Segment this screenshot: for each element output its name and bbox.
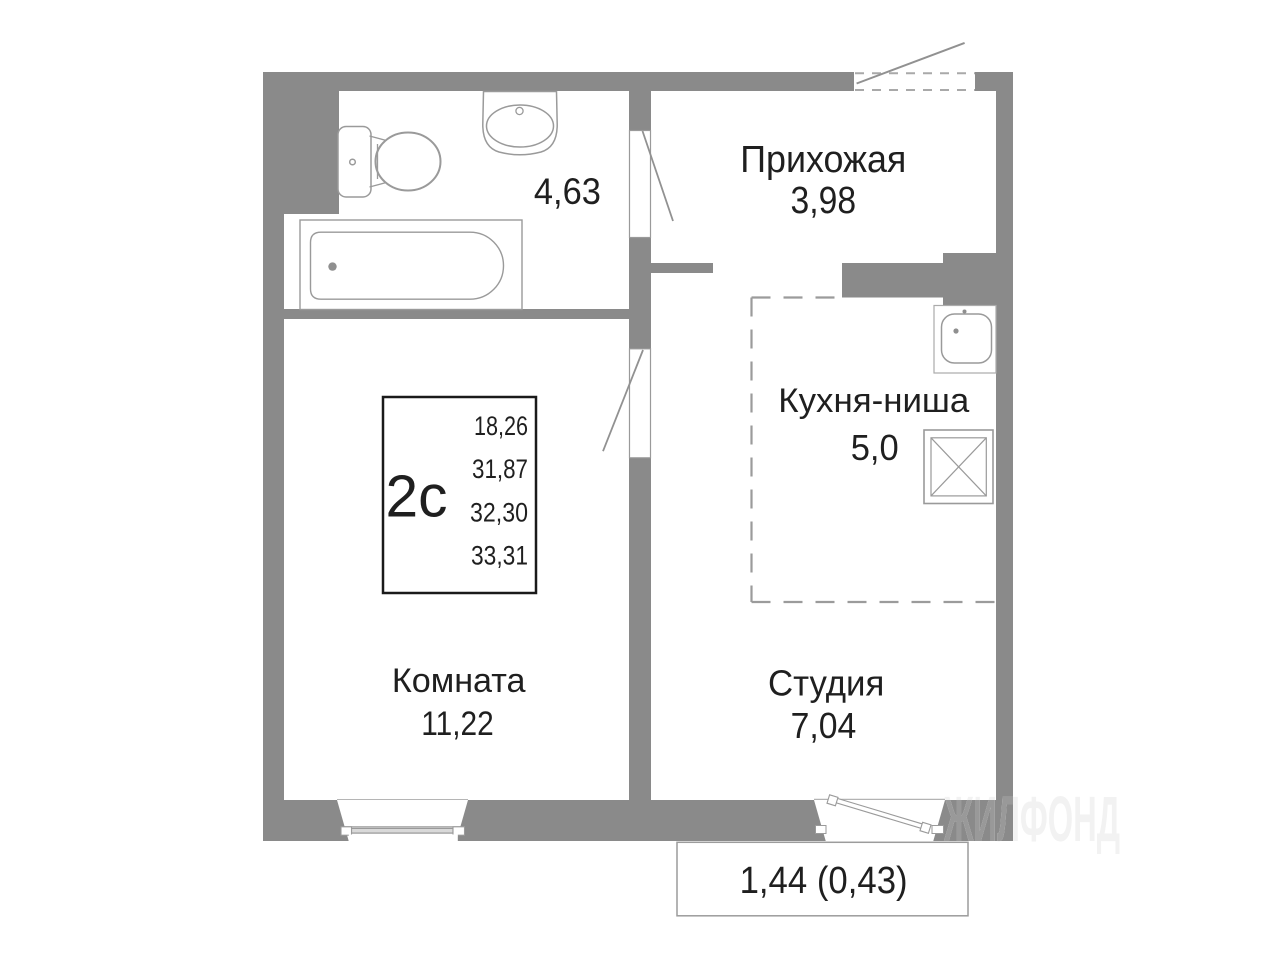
svg-text:Прихожая: Прихожая [740, 139, 906, 181]
svg-text:3,98: 3,98 [791, 180, 857, 222]
svg-text:Студия: Студия [768, 663, 884, 704]
svg-text:7,04: 7,04 [791, 705, 857, 746]
svg-text:18,26: 18,26 [474, 411, 528, 441]
svg-text:2с: 2с [386, 464, 448, 530]
svg-text:31,87: 31,87 [472, 454, 528, 484]
svg-text:32,30: 32,30 [470, 498, 528, 528]
svg-text:Комната: Комната [392, 662, 526, 700]
svg-text:11,22: 11,22 [421, 705, 494, 743]
svg-text:Кухня-ниша: Кухня-ниша [778, 382, 969, 420]
svg-text:5,0: 5,0 [851, 427, 899, 468]
svg-text:33,31: 33,31 [471, 541, 528, 571]
svg-text:4,63: 4,63 [534, 171, 601, 212]
svg-text:1,44 (0,43): 1,44 (0,43) [740, 860, 908, 902]
